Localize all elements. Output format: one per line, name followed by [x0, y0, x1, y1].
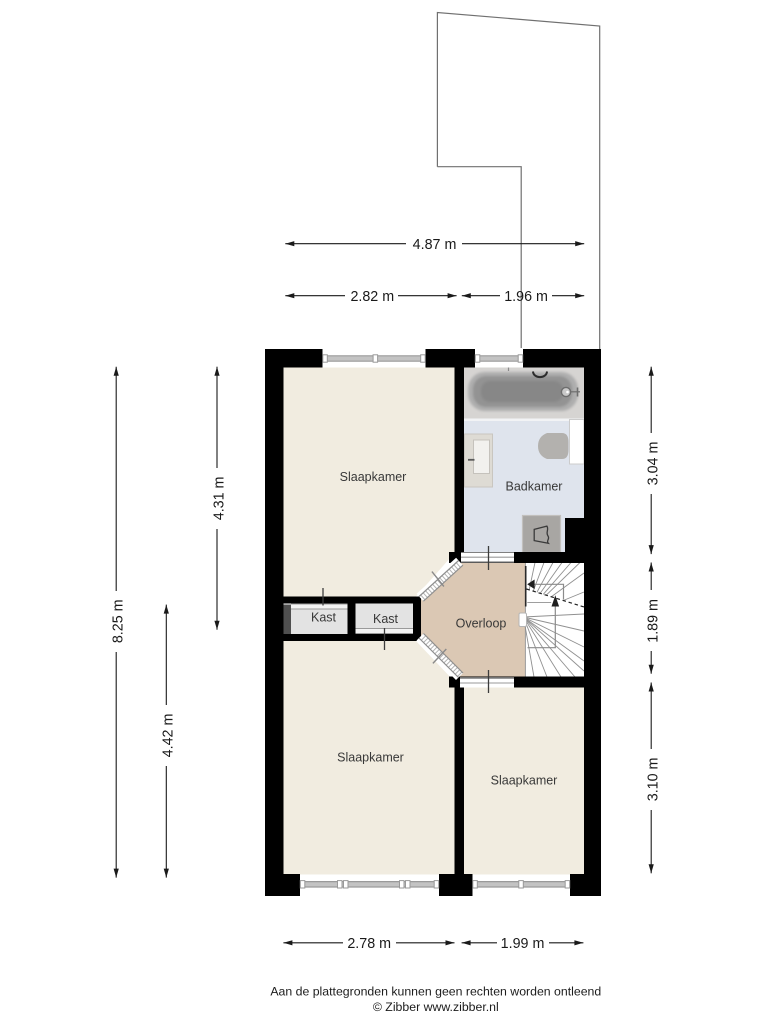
svg-text:Badkamer: Badkamer [506, 480, 563, 494]
svg-text:3.10 m: 3.10 m [646, 758, 662, 802]
svg-text:Slaapkamer: Slaapkamer [491, 774, 558, 788]
svg-text:Aan de plattegronden kunnen ge: Aan de plattegronden kunnen geen rechten… [270, 985, 601, 999]
svg-text:8.25 m: 8.25 m [111, 599, 127, 643]
svg-text:4.42 m: 4.42 m [161, 714, 177, 758]
svg-text:4.87 m: 4.87 m [413, 237, 457, 253]
svg-text:Kast: Kast [373, 612, 399, 626]
svg-text:1.96 m: 1.96 m [504, 289, 548, 305]
svg-text:3.04 m: 3.04 m [646, 442, 662, 486]
svg-text:Kast: Kast [311, 611, 337, 625]
svg-text:© Zibber www.zibber.nl: © Zibber www.zibber.nl [373, 1000, 499, 1014]
svg-text:4.31 m: 4.31 m [211, 477, 227, 521]
svg-text:Slaapkamer: Slaapkamer [340, 470, 407, 484]
svg-text:2.78 m: 2.78 m [347, 936, 391, 952]
svg-text:Slaapkamer: Slaapkamer [337, 751, 404, 765]
svg-text:Overloop: Overloop [456, 617, 507, 631]
svg-text:1.89 m: 1.89 m [646, 599, 662, 643]
svg-text:2.82 m: 2.82 m [350, 289, 394, 305]
svg-text:1.99 m: 1.99 m [501, 936, 545, 952]
